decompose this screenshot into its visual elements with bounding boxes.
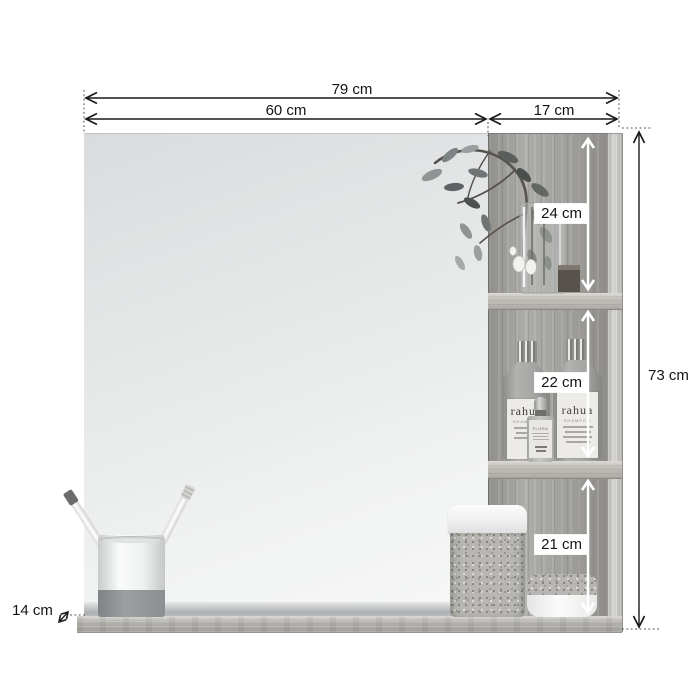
product-dimension-diagram: rahua SHAMPOO rahua SHAMPOO FLORA: [0, 0, 700, 700]
serum-label: FLORA: [529, 420, 552, 458]
label-shelf-depth: 14 cm: [12, 602, 53, 619]
wood-side-panel: [608, 133, 623, 632]
bottle-label: rahua SHAMPOO: [557, 392, 598, 458]
canister-body: [450, 533, 525, 617]
storage-canister: [448, 505, 527, 617]
shelf-divider-middle: [488, 461, 622, 479]
brand-sub-text: SHAMPOO: [564, 418, 591, 423]
dark-box: [558, 265, 580, 292]
bottle-cap: [517, 341, 537, 364]
shampoo-bottle-right: rahua SHAMPOO: [553, 339, 602, 461]
label-total-height: 73 cm: [648, 367, 689, 384]
storage-bowl: [527, 574, 597, 617]
bottom-shelf: [77, 616, 622, 633]
shelf-divider-top: [488, 293, 622, 310]
serum-name-text: FLORA: [533, 426, 549, 431]
label-top-compartment-height: 24 cm: [535, 204, 588, 223]
toothbrush-bristles: [63, 489, 79, 506]
canister-lid: [448, 505, 527, 535]
label-total-width: 79 cm: [84, 81, 620, 98]
depth-arrow-icon: [59, 612, 68, 622]
label-mirror-width: 60 cm: [84, 102, 488, 119]
bowl-bottom: [527, 595, 597, 617]
label-side-shelf-width: 17 cm: [488, 102, 620, 119]
serum-bottle: FLORA: [527, 397, 554, 462]
bowl-top: [527, 574, 597, 596]
brand-text: rahua: [562, 404, 594, 416]
bottle-cap: [566, 339, 586, 362]
dropper-bulb: [534, 397, 547, 411]
label-bottom-compartment-height: 21 cm: [535, 535, 588, 554]
toothbrush-cup: [98, 535, 165, 617]
label-middle-compartment-height: 22 cm: [535, 373, 588, 392]
